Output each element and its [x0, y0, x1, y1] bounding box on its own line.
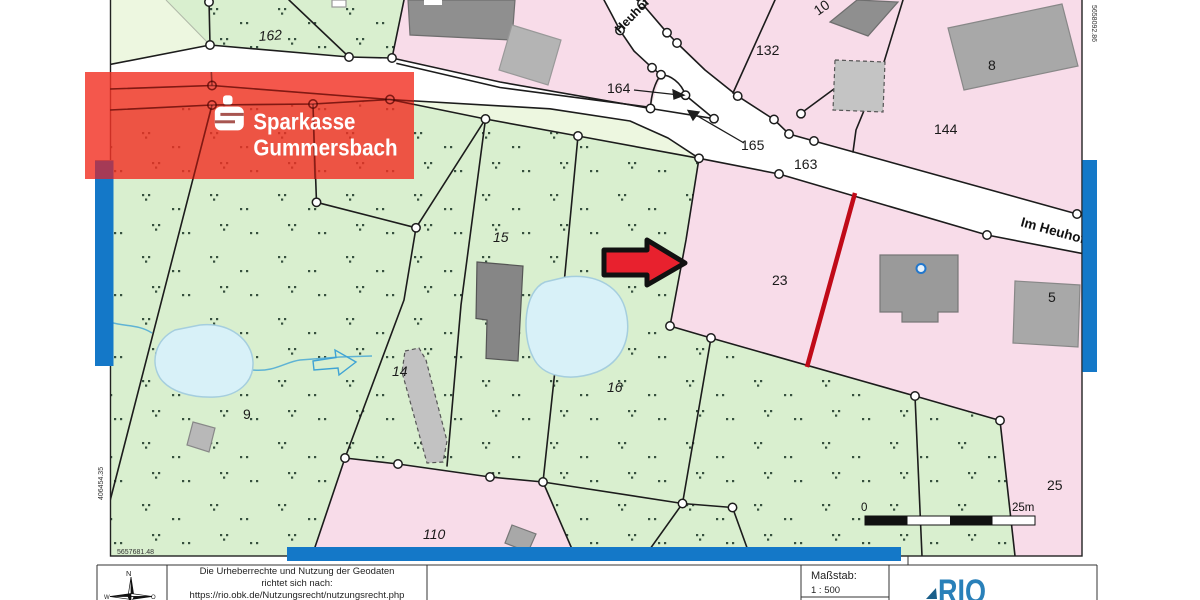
- svg-text:RIO: RIO: [938, 573, 986, 600]
- svg-text:Maßstab:: Maßstab:: [811, 570, 857, 582]
- svg-text:0: 0: [861, 502, 867, 514]
- svg-text:144: 144: [934, 121, 958, 137]
- svg-text:8: 8: [988, 57, 996, 73]
- svg-text:25: 25: [1047, 477, 1063, 493]
- svg-text:5: 5: [1048, 289, 1056, 305]
- svg-text:406454.35: 406454.35: [98, 467, 105, 500]
- svg-text:132: 132: [756, 42, 780, 58]
- svg-text:163: 163: [794, 156, 818, 172]
- svg-text:14: 14: [392, 363, 408, 379]
- svg-text:165: 165: [741, 137, 765, 153]
- svg-text:162: 162: [258, 26, 283, 44]
- svg-text:15: 15: [493, 229, 509, 245]
- svg-text:110: 110: [423, 526, 446, 542]
- svg-text:Gummersbach: Gummersbach: [253, 135, 397, 161]
- svg-text:Die Urheberrechte und Nutzung: Die Urheberrechte und Nutzung der Geodat…: [200, 566, 395, 577]
- svg-text:richtet sich nach:: richtet sich nach:: [261, 578, 332, 589]
- svg-text:16: 16: [607, 379, 623, 395]
- svg-text:9: 9: [243, 406, 251, 422]
- svg-text:1 : 500: 1 : 500: [811, 585, 840, 596]
- svg-text:N: N: [126, 569, 131, 578]
- svg-text:O: O: [151, 595, 156, 600]
- svg-text:164: 164: [607, 80, 631, 96]
- svg-text:5657681.48: 5657681.48: [117, 549, 154, 556]
- svg-text:https://rio.obk.de/Nutzungsrec: https://rio.obk.de/Nutzungsrecht/nutzung…: [190, 590, 405, 600]
- svg-text:23: 23: [772, 272, 788, 288]
- svg-text:5658092.86: 5658092.86: [1090, 5, 1097, 42]
- svg-text:Sparkasse: Sparkasse: [253, 109, 355, 135]
- svg-text:25m: 25m: [1012, 502, 1034, 514]
- svg-text:W: W: [104, 595, 110, 600]
